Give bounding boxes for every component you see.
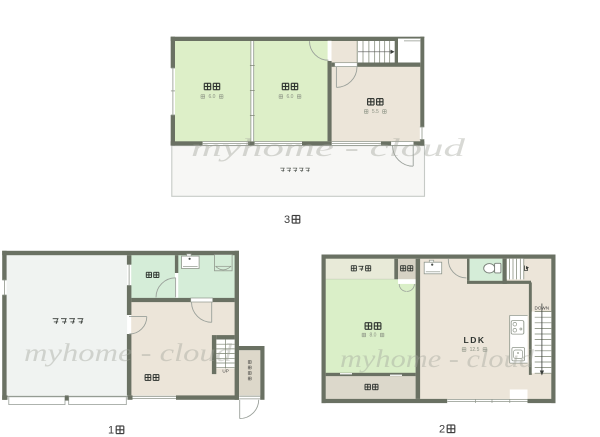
svg-text:myhome - cloud: myhome - cloud <box>191 135 466 162</box>
svg-text:1: 1 <box>108 425 114 437</box>
svg-text:2: 2 <box>439 424 445 436</box>
svg-text:DOWN: DOWN <box>535 306 550 311</box>
svg-text:myhome - cloud: myhome - cloud <box>24 340 233 367</box>
svg-text:6.0: 6.0 <box>287 94 294 100</box>
svg-text:UP: UP <box>222 369 228 374</box>
svg-text:myhome - cloud: myhome - cloud <box>340 346 535 373</box>
svg-text:LDK: LDK <box>464 335 486 345</box>
svg-text:3: 3 <box>284 214 290 226</box>
svg-text:5.5: 5.5 <box>372 109 379 115</box>
svg-text:6.0: 6.0 <box>209 94 216 100</box>
svg-text:8.0: 8.0 <box>370 333 377 339</box>
